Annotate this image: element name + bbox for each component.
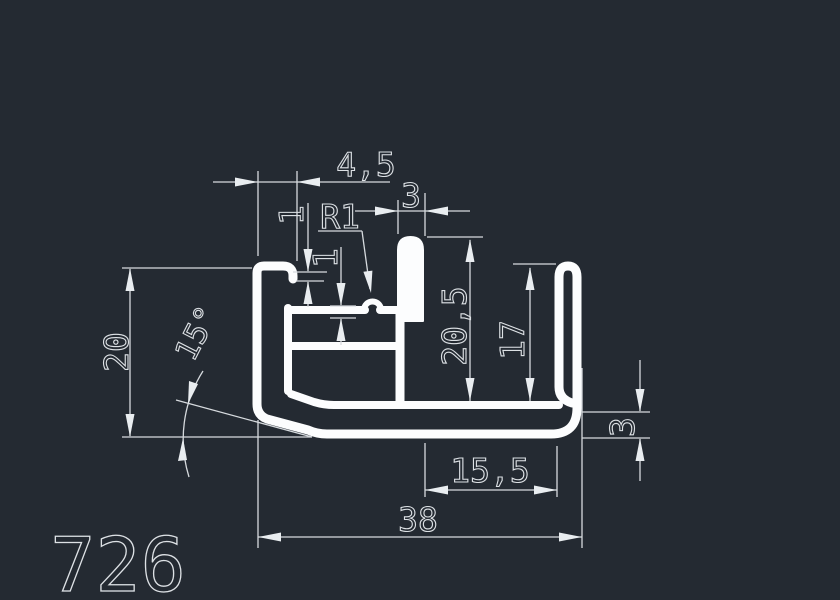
dim-top-width-label: 4,5 [336,145,396,184]
dim-web-thickness: 1 [306,247,356,345]
arrow-down-icon [636,389,645,412]
arrow-up-icon [304,281,313,304]
dim-stem-thickness: 3 [355,176,470,236]
dim-fillet-radius-label: R1 [320,197,360,236]
tick-line [293,272,327,281]
arrow-left-icon [258,533,281,542]
arrow-up-icon [466,239,475,262]
profile-inner-floor [291,394,559,405]
arrow-down-icon [526,378,535,401]
dim-left-height-label: 20 [97,332,136,372]
profile-r1-arch [364,302,381,311]
dim-overall-width-label: 38 [398,500,438,539]
arrow-up-icon [526,267,535,290]
arrow-down-icon [363,271,372,293]
dim-lip-gap-label: 1 [272,205,311,225]
arrow-down-icon [188,381,198,404]
arrow-down-icon [466,378,475,401]
arrow-left-icon [425,486,448,495]
cad-drawing-canvas[interactable]: 4,5 3 R1 1 [0,0,840,600]
arrow-down-icon [337,283,346,306]
dim-base-thickness: 3 [582,360,650,481]
arrow-up-icon [337,318,346,341]
dim-draft-angle-label: 15° [168,300,225,366]
arrow-up-icon [178,438,187,461]
dim-channel-depth: 20,5 [427,237,483,401]
arrow-left-icon [425,207,448,216]
dim-channel-width: 15,5 [425,443,557,497]
dim-channel-depth-label: 20,5 [435,286,474,365]
arrow-right-icon [375,207,398,216]
dim-web-thickness-label: 1 [306,248,345,268]
arrow-left-icon [297,178,320,187]
dim-hook-depth-label: 17 [493,320,532,360]
dim-hook-depth: 17 [493,264,556,401]
dim-channel-width-label: 15,5 [450,451,529,490]
arrow-up-icon [126,268,135,291]
angle-ray-line [176,400,312,437]
dim-stem-thickness-label: 3 [401,176,421,215]
dim-base-thickness-label: 3 [603,417,642,437]
arrow-right-icon [559,533,582,542]
arrow-right-icon [235,178,258,187]
arrow-right-icon [534,486,557,495]
profile-drawing: 4,5 3 R1 1 [0,0,840,600]
dim-overall-width: 38 [258,368,582,548]
dim-top-width: 4,5 [213,145,396,261]
arrow-up-icon [636,438,645,461]
part-number-label: 726 [50,521,185,600]
arrow-down-icon [126,414,135,437]
